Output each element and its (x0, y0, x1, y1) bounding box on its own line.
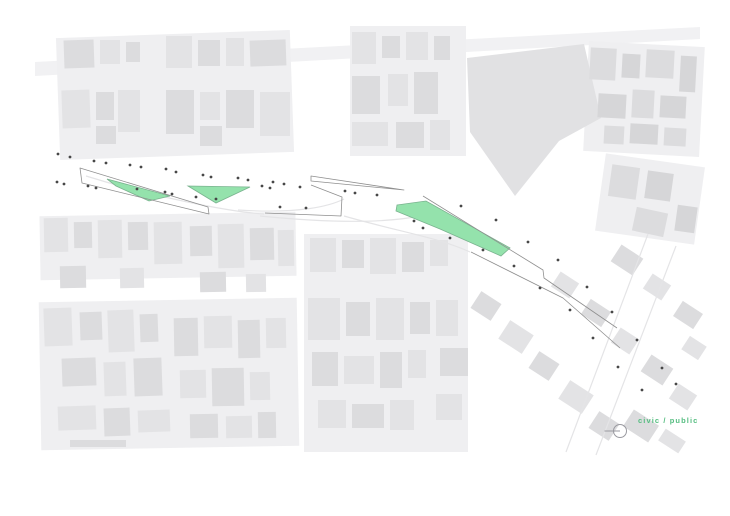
big-block-shape (467, 44, 601, 196)
site-plan-page: civic / public (0, 0, 730, 516)
site-plan-map: civic / public (0, 0, 730, 516)
legend-civic-public-label: civic / public (638, 416, 698, 425)
